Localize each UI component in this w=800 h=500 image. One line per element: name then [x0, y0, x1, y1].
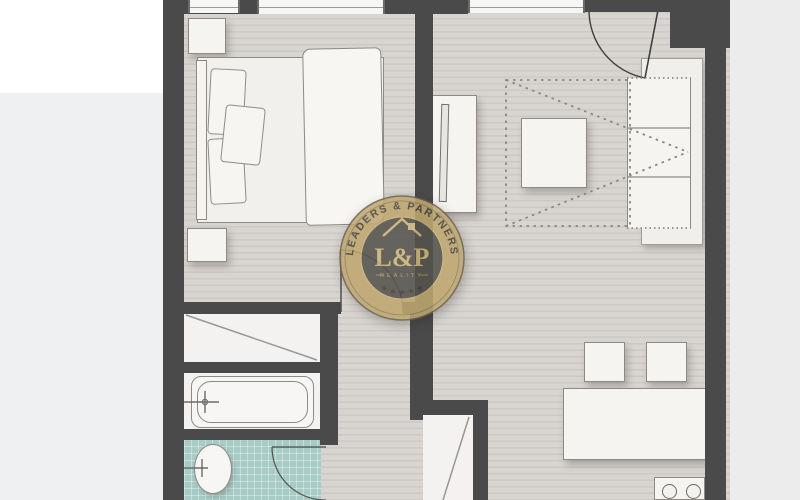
- wall-right: [705, 48, 726, 500]
- window-glass-line: [259, 7, 383, 8]
- wardrobe-interior: [423, 415, 473, 500]
- wall-bedroom-bottom: [163, 302, 341, 314]
- window-glass-line: [470, 7, 583, 8]
- window-glass-line: [190, 7, 238, 8]
- bed-cushion-small: [220, 104, 266, 166]
- nightstand-top: [188, 18, 226, 54]
- sofa-cushions: [627, 78, 691, 228]
- wall-closet-divider: [163, 362, 338, 373]
- stool-left: [584, 342, 625, 382]
- wc-sink: [194, 444, 232, 494]
- wall-tub-divider: [163, 429, 338, 440]
- window-small-left: [188, 0, 240, 13]
- stool-right: [646, 342, 687, 382]
- closet-room-floor: [184, 312, 320, 364]
- realty-watermark-badge: LEADERS & PARTNERS ★ ★ ★ ★ ★ L&P REALITY: [338, 194, 466, 322]
- background-left-panel: [0, 93, 163, 500]
- stove-burner-left: [662, 484, 677, 499]
- stove-unit: [654, 477, 705, 500]
- wall-left: [163, 0, 184, 500]
- nightstand-bottom: [187, 228, 227, 262]
- bathtub-inner-rim: [197, 381, 308, 423]
- badge-subtitle: REALITY: [380, 273, 424, 279]
- window-living: [468, 0, 585, 13]
- wall-bathroom-right: [320, 312, 338, 445]
- bed-headboard: [196, 60, 207, 220]
- floor-plan: LEADERS & PARTNERS ★ ★ ★ ★ ★ L&P REALITY: [0, 0, 800, 500]
- dining-table: [563, 388, 706, 460]
- background-top-left: [0, 0, 163, 93]
- coffee-table: [521, 118, 587, 188]
- wall-top-c: [585, 0, 670, 12]
- stove-burner-right: [686, 484, 701, 499]
- wardrobe-wall-right: [473, 413, 488, 500]
- badge-monogram: L&P: [375, 243, 430, 272]
- badge-house-chimney: [408, 223, 415, 230]
- wall-corner-block: [670, 0, 730, 48]
- background-right-panel: [726, 0, 800, 500]
- window-bedroom: [257, 0, 385, 14]
